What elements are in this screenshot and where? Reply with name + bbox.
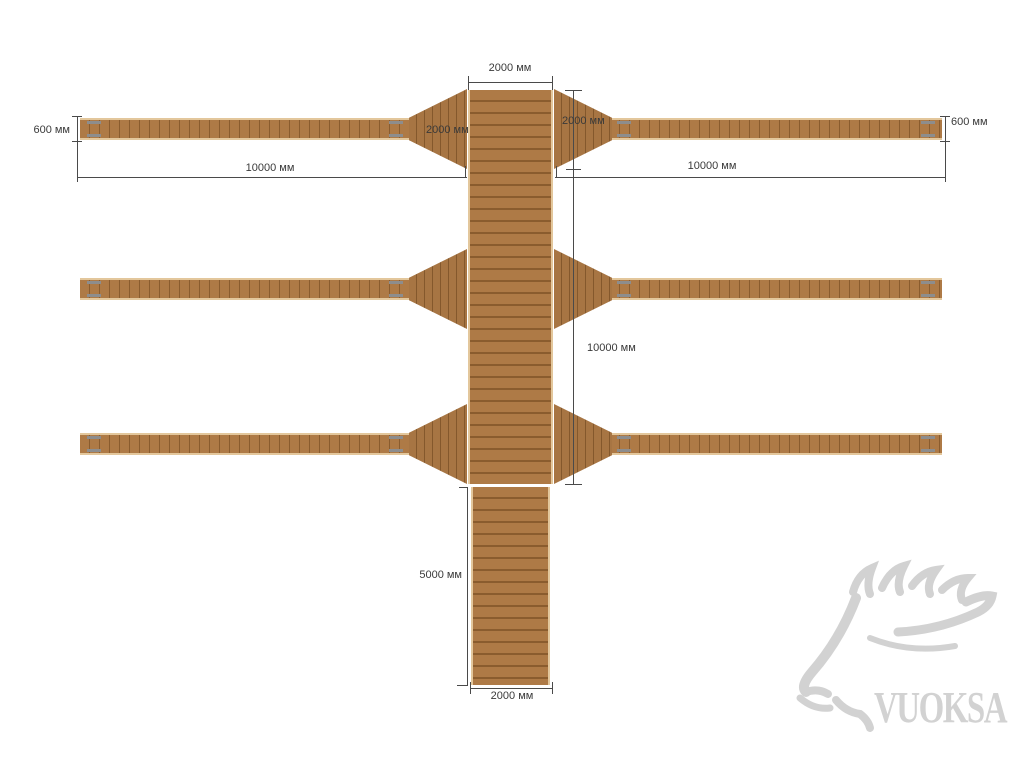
dimension-tick (566, 169, 581, 170)
finger-walkway-middle-right (610, 278, 942, 300)
dimension-tick (72, 141, 82, 142)
dimension-tick (552, 76, 553, 90)
dimension-line (468, 82, 553, 83)
dim-label-left-finger-width: 600 мм (28, 125, 70, 136)
transition-ramp-middle-right (554, 249, 612, 329)
dimension-line (77, 177, 467, 178)
dim-label-top-right-transition: 2000 мм (562, 116, 605, 127)
finger-walkway-top-left (80, 118, 410, 140)
transition-ramp-top-right (554, 89, 612, 169)
dimension-tick (468, 76, 469, 90)
watermark-text: VUOKSA (874, 683, 1008, 732)
dimension-line (467, 487, 468, 686)
finger-walkway-bottom-left (80, 433, 410, 455)
main-walkway (468, 90, 553, 484)
dimension-tick (459, 487, 468, 488)
dim-label-bottom-extension-length: 5000 мм (412, 570, 462, 581)
transition-ramp-middle-left (409, 249, 467, 329)
main-walkway-extension (471, 487, 550, 685)
finger-walkway-middle-left (80, 278, 410, 300)
dimension-line (470, 688, 553, 689)
dim-label-bottom-extension-width: 2000 мм (462, 691, 562, 702)
dimension-line (945, 116, 946, 182)
dimension-tick (940, 141, 950, 142)
vuoksa-watermark: VUOKSA (770, 550, 1020, 735)
dim-label-right-finger-width: 600 мм (951, 117, 988, 128)
dimension-tick (72, 116, 82, 117)
dim-label-left-finger-length: 10000 мм (170, 163, 370, 174)
transition-ramp-bottom-right (554, 404, 612, 484)
dimension-tick (565, 90, 582, 91)
transition-ramp-bottom-left (409, 404, 467, 484)
dim-label-right-finger-length: 10000 мм (612, 161, 812, 172)
dim-label-top-width: 2000 мм (460, 63, 560, 74)
dimension-tick (457, 685, 468, 686)
dock-plan-drawing: 2000 мм 600 мм 600 мм 10000 мм 10000 мм … (0, 0, 1024, 768)
dimension-line (555, 177, 945, 178)
dimension-tick (940, 116, 950, 117)
dim-label-top-left-transition: 2000 мм (426, 125, 469, 136)
dimension-tick (565, 484, 582, 485)
dimension-line (77, 116, 78, 182)
dimension-tick (556, 166, 557, 178)
finger-walkway-bottom-right (610, 433, 942, 455)
dimension-tick (465, 166, 466, 178)
dim-label-main-walkway-length: 10000 мм (587, 343, 636, 354)
finger-walkway-top-right (610, 118, 942, 140)
dimension-line (573, 90, 574, 485)
